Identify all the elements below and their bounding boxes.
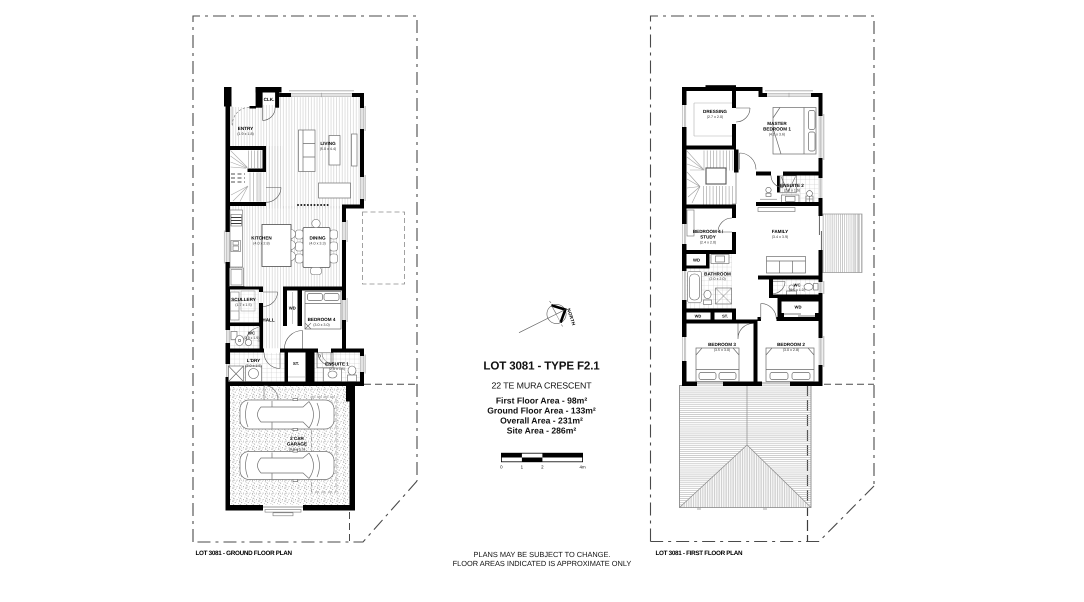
svg-text:(2.7 x 2.0): (2.7 x 2.0) [707,115,724,119]
svg-text:(1.9 x 1.8): (1.9 x 1.8) [237,132,254,136]
svg-text:2 CAR: 2 CAR [290,436,304,441]
svg-text:L'DRY: L'DRY [247,358,260,363]
svg-text:DINING: DINING [309,236,326,241]
svg-text:First Floor Area - 98m²: First Floor Area - 98m² [496,396,588,406]
svg-text:ST.: ST. [722,314,728,319]
svg-text:BEDROOM 4: BEDROOM 4 [308,317,336,322]
svg-text:STUDY: STUDY [700,234,716,239]
svg-text:ENSUITE 1: ENSUITE 1 [325,362,349,367]
svg-text:(3.0 x 2.8): (3.0 x 2.8) [783,348,800,352]
svg-text:LIVING: LIVING [320,141,336,146]
svg-text:(2.0 x 2.0): (2.0 x 2.0) [709,277,726,281]
svg-text:(2.4 x 2.0): (2.4 x 2.0) [700,240,717,244]
svg-text:(3.5 x 3.0): (3.5 x 3.0) [714,348,731,352]
svg-text:BEDROOM 2: BEDROOM 2 [777,342,805,347]
svg-text:CLK.: CLK. [264,97,275,102]
svg-text:WD: WD [795,305,802,310]
svg-text:22 TE MURA CRESCENT: 22 TE MURA CRESCENT [491,381,592,391]
svg-text:Site Area - 286m²: Site Area - 286m² [507,426,577,436]
svg-text:WC: WC [794,283,801,288]
svg-text:(2.0 x 1.0): (2.0 x 1.0) [789,288,805,292]
svg-text:(1.7 x 1.5): (1.7 x 1.5) [235,303,252,307]
svg-text:(4.0 x 3.6): (4.0 x 3.6) [769,132,786,136]
svg-text:SCULLERY: SCULLERY [231,297,256,302]
svg-text:Ground Floor Area - 133m²: Ground Floor Area - 133m² [487,406,596,416]
svg-text:WD: WD [695,314,702,319]
svg-text:KITCHEN: KITCHEN [251,236,272,241]
svg-text:(2.0 x 1.5): (2.0 x 1.5) [245,364,262,368]
svg-text:(4.0 x 3.3): (4.0 x 3.3) [309,241,326,245]
svg-text:(2.0 x 1.5): (2.0 x 1.5) [329,367,346,371]
svg-text:BEDROOM 3: BEDROOM 3 [708,342,736,347]
svg-text:(6.0 x 5.5): (6.0 x 5.5) [289,448,306,452]
svg-text:MASTER: MASTER [767,121,787,126]
svg-text:(0.9 x 1.9): (0.9 x 1.9) [244,336,260,340]
svg-text:BEDROOM 1: BEDROOM 1 [763,126,791,131]
svg-text:FLOOR AREAS INDICATED IS APPRO: FLOOR AREAS INDICATED IS APPROXIMATE ONL… [453,559,632,568]
svg-text:4m: 4m [580,465,586,470]
svg-text:PLANS MAY BE SUBJECT TO CHANGE: PLANS MAY BE SUBJECT TO CHANGE. [474,550,611,559]
svg-text:Overall Area - 231m²: Overall Area - 231m² [500,416,583,426]
svg-text:LOT 3081 - TYPE F2.1: LOT 3081 - TYPE F2.1 [483,360,600,373]
svg-text:LOT 3081 - FIRST FLOOR PLAN: LOT 3081 - FIRST FLOOR PLAN [656,550,743,557]
svg-text:(2.0 x 1.5): (2.0 x 1.5) [784,189,801,193]
svg-text:(4.0 x 2.8): (4.0 x 2.8) [253,241,270,245]
svg-text:WD: WD [289,306,296,311]
svg-text:ST.: ST. [293,361,299,366]
svg-text:WC: WC [248,331,255,336]
svg-text:(5.0 x 4.4): (5.0 x 4.4) [320,147,337,151]
svg-text:FAMILY: FAMILY [772,229,788,234]
svg-text:WD: WD [693,258,700,263]
svg-text:ENTRY: ENTRY [238,126,253,131]
svg-text:(3.4 x 3.9): (3.4 x 3.9) [772,235,789,239]
svg-text:GARAGE: GARAGE [287,442,307,447]
svg-text:BATHROOM: BATHROOM [704,272,731,277]
svg-text:LOT 3081 - GROUND FLOOR PLAN: LOT 3081 - GROUND FLOOR PLAN [196,550,293,557]
svg-text:(3.0 x 3.0): (3.0 x 3.0) [313,323,330,327]
svg-text:DRESSING: DRESSING [703,109,727,114]
svg-text:HALL: HALL [262,318,274,323]
svg-text:ENSUITE 2: ENSUITE 2 [780,183,804,188]
svg-text:BEDROOM 4 /: BEDROOM 4 / [693,229,724,234]
